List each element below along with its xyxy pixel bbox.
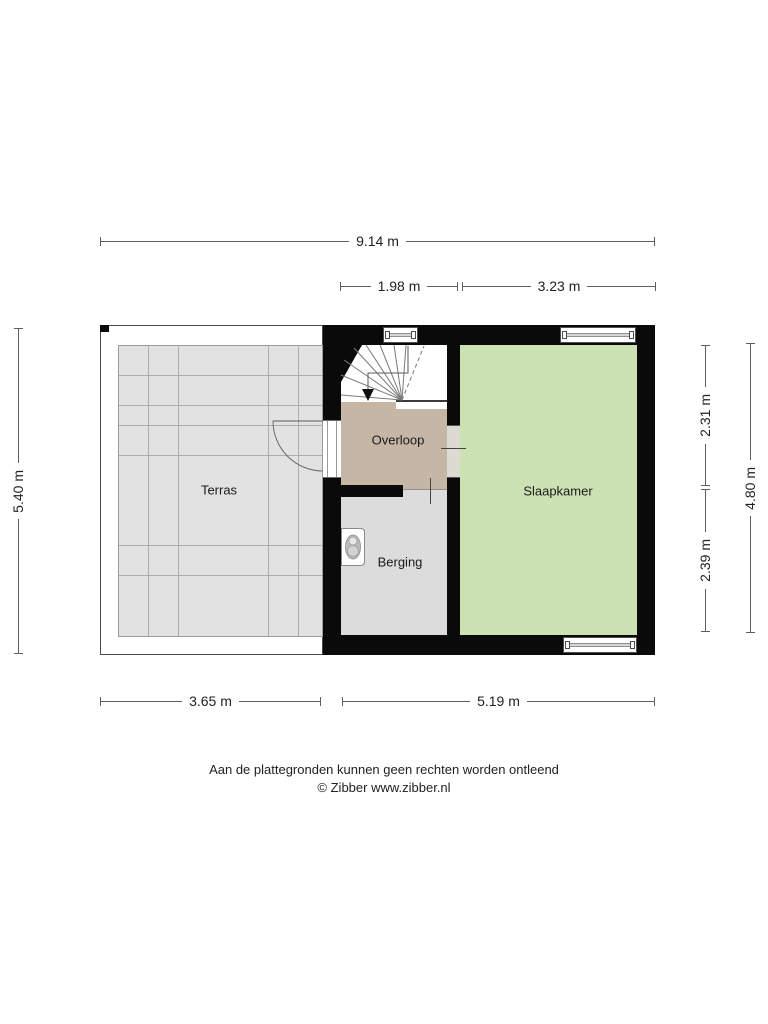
dimension-label: 3.65 m bbox=[182, 693, 239, 709]
door-berging-mark bbox=[430, 478, 431, 504]
window-top-slaapkamer-icon bbox=[560, 327, 636, 343]
dimension-label: 2.31 m bbox=[697, 387, 713, 444]
room-berging-label: Berging bbox=[378, 555, 423, 570]
door-berging-opening bbox=[403, 485, 447, 497]
footer-disclaimer: Aan de plattegronden kunnen geen rechten… bbox=[0, 762, 768, 777]
dimension-right-lower: 2.39 m bbox=[695, 489, 715, 632]
dimension-bottom-terras: 3.65 m bbox=[100, 693, 321, 709]
floorplan-canvas: 9.14 m 1.98 m 3.23 m 5.40 m 2.31 m 2.39 … bbox=[0, 0, 768, 1024]
terras-corner-post bbox=[100, 325, 109, 332]
dimension-label: 9.14 m bbox=[349, 233, 406, 249]
dimension-label: 5.40 m bbox=[10, 463, 26, 520]
stair-direction-arrow-icon bbox=[362, 389, 374, 401]
door-slaapkamer-mark bbox=[441, 448, 466, 449]
dimension-label: 1.98 m bbox=[371, 278, 428, 294]
dimension-right-upper: 2.31 m bbox=[695, 345, 715, 486]
footer-credit: © Zibber www.zibber.nl bbox=[0, 780, 768, 795]
room-terras-label: Terras bbox=[201, 483, 237, 498]
dimension-label: 3.23 m bbox=[531, 278, 588, 294]
dimension-top-overloop: 1.98 m bbox=[340, 278, 458, 294]
dimension-top-slaapkamer: 3.23 m bbox=[462, 278, 656, 294]
dimension-top-total: 9.14 m bbox=[100, 233, 655, 249]
door-slaapkamer-opening bbox=[447, 425, 460, 478]
stairs-icon bbox=[336, 338, 460, 414]
dimension-label: 2.39 m bbox=[697, 532, 713, 589]
room-slaapkamer-label: Slaapkamer bbox=[523, 484, 592, 499]
dimension-bottom-main: 5.19 m bbox=[342, 693, 655, 709]
dimension-label: 4.80 m bbox=[742, 460, 758, 517]
window-bottom-slaapkamer-icon bbox=[563, 637, 637, 653]
dimension-right-total: 4.80 m bbox=[740, 343, 760, 633]
door-terras-swing-icon bbox=[268, 415, 343, 480]
boiler-icon bbox=[341, 528, 365, 566]
dimension-label: 5.19 m bbox=[470, 693, 527, 709]
room-overloop-label: Overloop bbox=[372, 433, 425, 448]
dimension-left-total: 5.40 m bbox=[8, 328, 28, 654]
